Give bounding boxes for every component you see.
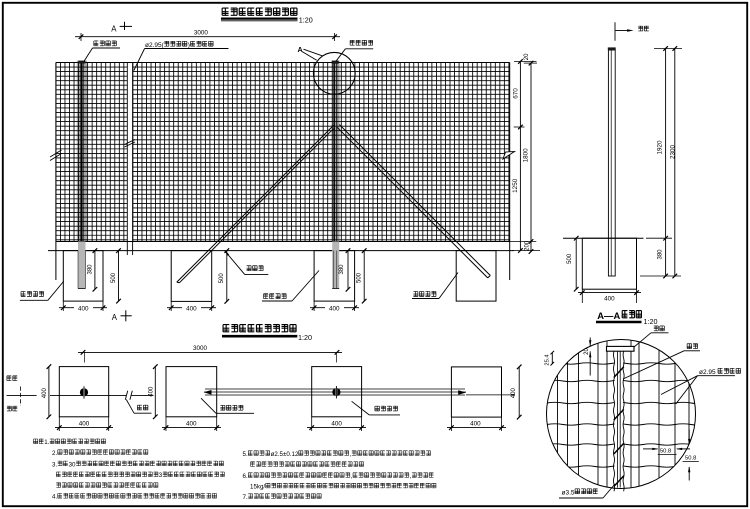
svg-text:400: 400 xyxy=(186,420,197,427)
svg-text:5.: 5. xyxy=(243,451,248,458)
svg-text:380: 380 xyxy=(339,264,345,275)
svg-text:A: A xyxy=(614,310,621,321)
svg-text:6.: 6. xyxy=(243,473,248,480)
svg-text:670: 670 xyxy=(513,88,520,99)
svg-text:1:20: 1:20 xyxy=(299,15,313,24)
svg-text:3.: 3. xyxy=(52,461,57,468)
svg-text:A: A xyxy=(298,45,303,54)
svg-text:2.: 2. xyxy=(52,450,57,457)
svg-text:A: A xyxy=(112,313,118,322)
svg-text:1920: 1920 xyxy=(656,140,663,155)
svg-text:3000: 3000 xyxy=(193,345,208,352)
svg-text:,: , xyxy=(410,473,412,480)
svg-text:3: 3 xyxy=(159,472,163,479)
svg-text:400: 400 xyxy=(470,420,481,427)
svg-text:1800: 1800 xyxy=(522,148,529,163)
svg-text:,: , xyxy=(350,451,352,458)
svg-text:400: 400 xyxy=(42,388,48,399)
svg-text:1.: 1. xyxy=(44,439,49,446)
svg-text:400: 400 xyxy=(79,420,90,427)
svg-text:A: A xyxy=(111,24,117,33)
svg-text:50.8: 50.8 xyxy=(685,456,696,462)
svg-text:3000: 3000 xyxy=(194,29,209,36)
svg-text:400: 400 xyxy=(186,305,197,312)
svg-text:2300: 2300 xyxy=(670,145,677,160)
svg-text:ø2.95(: ø2.95( xyxy=(145,42,165,49)
svg-text:1250: 1250 xyxy=(512,178,519,193)
svg-text:500: 500 xyxy=(111,272,117,283)
svg-text:4.: 4. xyxy=(52,494,57,501)
svg-text:,: , xyxy=(351,473,353,480)
svg-text:380: 380 xyxy=(87,264,93,275)
svg-text:1:20: 1:20 xyxy=(644,317,658,326)
svg-text:7.: 7. xyxy=(243,494,248,501)
svg-text:): ) xyxy=(188,42,190,49)
svg-text:20: 20 xyxy=(584,348,590,355)
svg-text:1:20: 1:20 xyxy=(298,333,312,342)
svg-text:30: 30 xyxy=(69,461,76,468)
svg-text:400: 400 xyxy=(329,305,340,312)
svg-text:ø2.95: ø2.95 xyxy=(699,369,716,376)
svg-text:—: — xyxy=(604,310,614,321)
svg-text:500: 500 xyxy=(567,253,573,264)
svg-text:500: 500 xyxy=(219,273,225,284)
svg-text:200: 200 xyxy=(524,240,530,251)
svg-text:400: 400 xyxy=(604,296,615,303)
svg-text:ø3.5: ø3.5 xyxy=(562,489,575,496)
svg-text:380: 380 xyxy=(658,249,664,260)
svg-text:400: 400 xyxy=(148,386,154,397)
svg-text:25.4: 25.4 xyxy=(544,354,550,366)
svg-text:400: 400 xyxy=(511,388,517,399)
svg-text:ø2.5±0.12: ø2.5±0.12 xyxy=(271,451,299,458)
svg-text:400: 400 xyxy=(78,305,89,312)
svg-text:20: 20 xyxy=(524,53,530,60)
svg-text:400: 400 xyxy=(331,420,342,427)
svg-text:500: 500 xyxy=(356,272,362,283)
svg-text:50.8: 50.8 xyxy=(660,449,671,455)
svg-text:15kg/: 15kg/ xyxy=(250,484,265,491)
